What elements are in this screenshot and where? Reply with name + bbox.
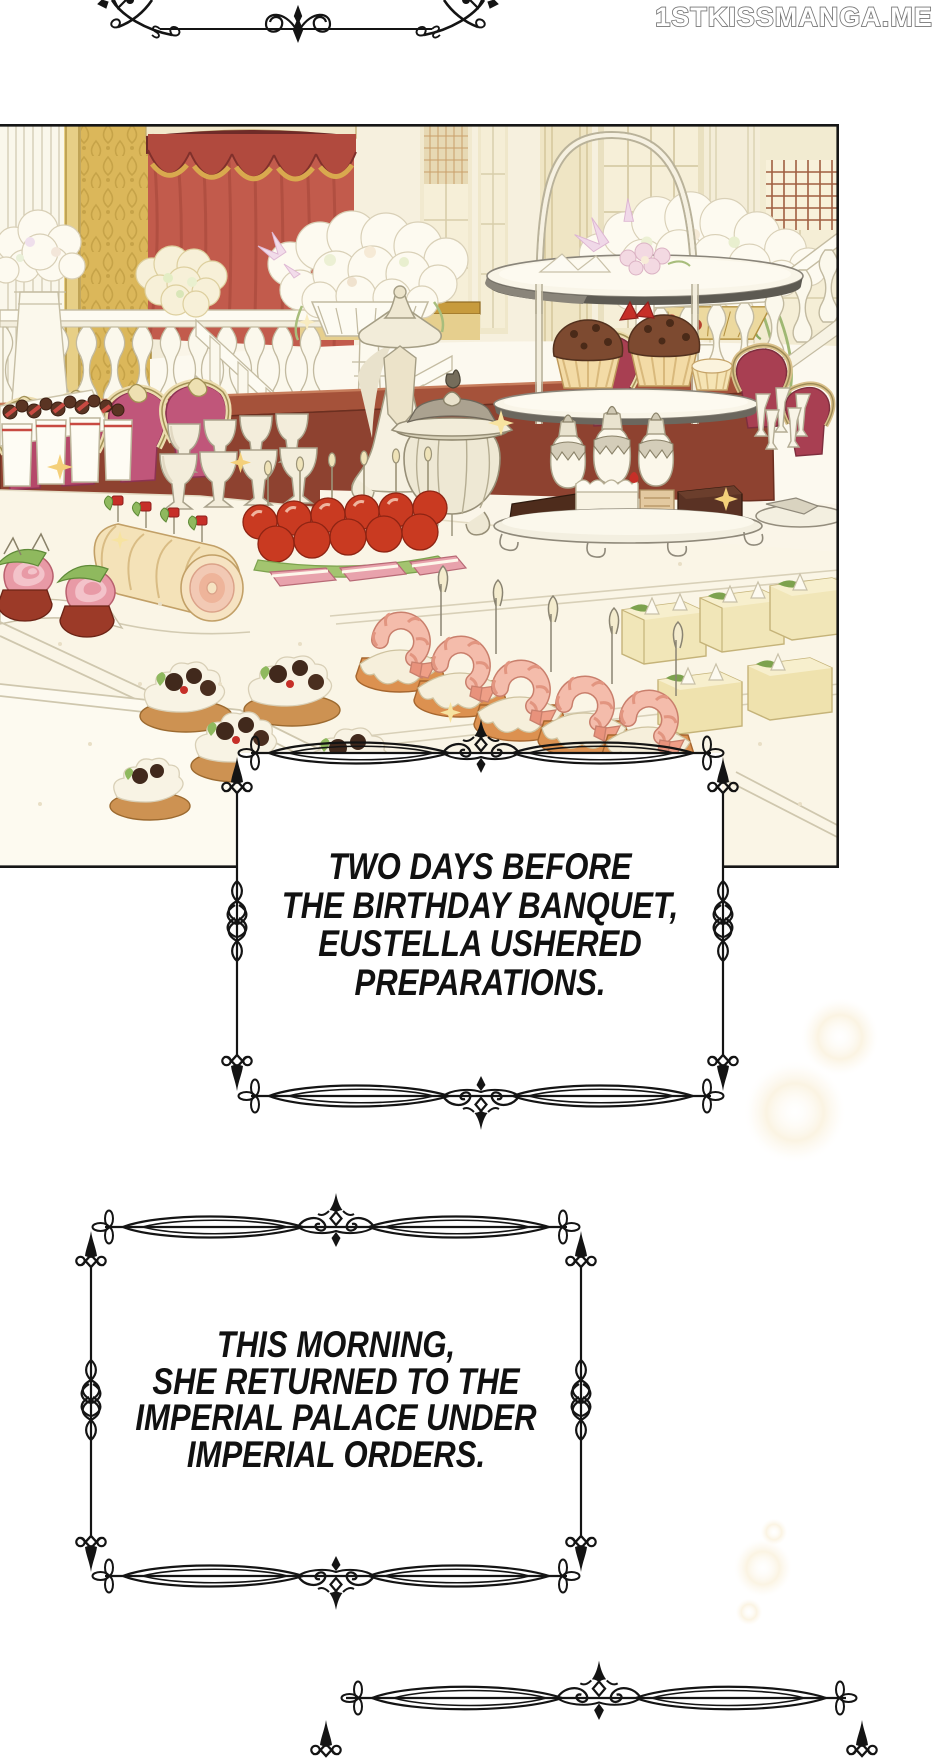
svg-text:1STKISSMANGA.ME: 1STKISSMANGA.ME (655, 2, 933, 32)
